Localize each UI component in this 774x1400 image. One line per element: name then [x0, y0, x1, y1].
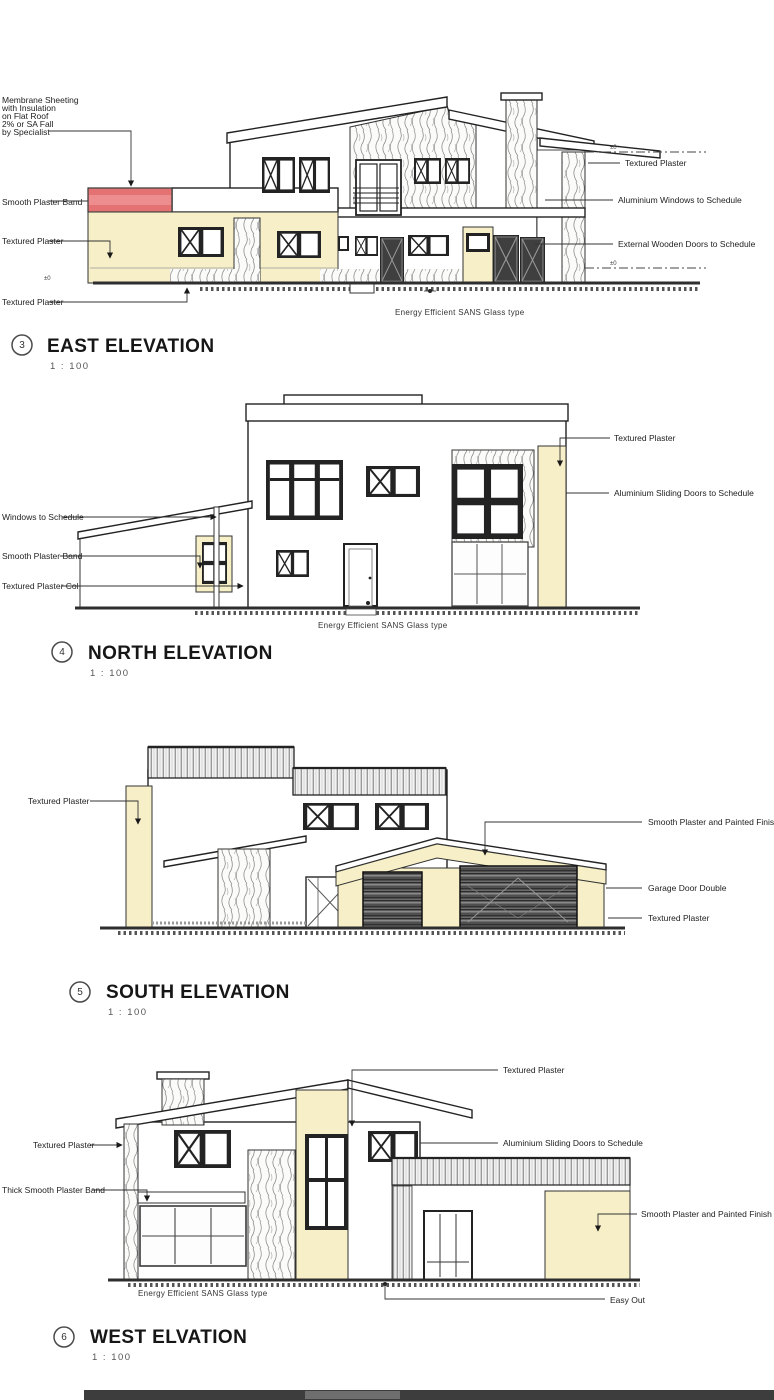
elevation-scale: 1 : 100	[92, 1352, 132, 1363]
annotation-label: Aluminium Windows to Schedule	[618, 195, 742, 205]
window	[414, 158, 441, 184]
annotation-label: Textured Plaster	[614, 433, 676, 443]
elevation-scale: 1 : 100	[90, 668, 130, 679]
north-parapet-band	[246, 404, 568, 421]
leader-line	[385, 1284, 605, 1299]
level-text: ±0	[44, 276, 51, 282]
window	[174, 1130, 231, 1168]
west-elevation: Textured Plaster Aluminium Sliding Doors…	[2, 1065, 772, 1363]
west-lower-window	[140, 1206, 246, 1266]
door	[493, 235, 519, 283]
east-chimney	[506, 99, 537, 216]
detail-number: 4	[59, 647, 65, 658]
level-text: ±0	[610, 145, 617, 151]
east-step	[350, 284, 374, 293]
elevation-scale: 1 : 100	[50, 361, 90, 372]
south-drawing	[100, 747, 625, 933]
elevation-title: SOUTH ELEVATION	[106, 982, 290, 1003]
annotation-label: Smooth Plaster Band	[2, 197, 83, 207]
north-post	[214, 507, 219, 608]
east-red-band-top	[89, 189, 171, 195]
south-stone-panel	[218, 849, 270, 928]
annotation-label: by Specialist	[2, 127, 50, 137]
annotation-label: Garage Door Double	[648, 883, 727, 893]
east-drawing: ±0 ±0 ±0	[44, 93, 706, 293]
garage-door-single	[363, 872, 422, 928]
south-roof-right	[293, 768, 446, 795]
east-red-band-bottom	[89, 205, 171, 211]
window	[178, 227, 224, 257]
door	[380, 237, 404, 283]
west-flat-roof-band	[392, 1158, 630, 1185]
detail-number: 5	[77, 987, 83, 998]
leader-line	[560, 438, 610, 466]
south-elevation: Textured Plaster Smooth Plaster and Pain…	[28, 747, 774, 1018]
annotation-label: Aluminium Sliding Doors to Schedule	[614, 488, 754, 498]
elevation-scale: 1 : 100	[108, 1007, 148, 1018]
annotation-label: Easy Out	[610, 1295, 646, 1305]
west-smooth-band	[125, 1192, 245, 1203]
west-cream-right	[545, 1191, 630, 1280]
elevation-title: EAST ELEVATION	[47, 336, 214, 357]
detail-number: 3	[19, 340, 25, 351]
north-title-block: 4 NORTH ELEVATION 1 : 100	[52, 642, 273, 679]
east-title-block: 3 EAST ELEVATION 1 : 100	[12, 335, 214, 372]
leader-line	[48, 288, 187, 302]
window	[366, 466, 420, 497]
west-chimney-cap	[157, 1072, 209, 1079]
south-title-block: 5 SOUTH ELEVATION 1 : 100	[70, 982, 290, 1018]
window	[452, 464, 523, 539]
detail-number: 6	[61, 1332, 67, 1343]
annotation-label: Textured Plaster	[648, 913, 710, 923]
annotation-label: Thick Smooth Plaster Band	[2, 1185, 105, 1195]
north-step	[346, 609, 376, 615]
west-stone-pilaster	[124, 1124, 138, 1280]
north-elevation: Windows to Schedule Smooth Plaster Band …	[2, 395, 754, 679]
window	[355, 236, 378, 256]
north-cream-band	[538, 446, 566, 608]
west-title-block: 6 WEST ELVATION 1 : 100	[54, 1327, 247, 1363]
drawing-sheet: ±0 ±0 ±0 Membrane Sheeting with Insulati…	[0, 0, 774, 1400]
west-drawing	[108, 1072, 640, 1286]
annotation-label: Smooth Plaster and Painted Finish	[648, 817, 774, 827]
south-roof-left	[148, 747, 294, 778]
annotation-label: Textured Plaster	[625, 158, 687, 168]
annotation-label: Textured Plaster	[33, 1140, 95, 1150]
east-plinth-stone-left	[170, 269, 260, 283]
window	[277, 231, 321, 258]
window	[303, 803, 359, 830]
window	[445, 158, 470, 184]
garage-door-double	[460, 866, 577, 928]
footer-bar-light	[305, 1391, 400, 1399]
elevation-title: NORTH ELEVATION	[88, 643, 273, 664]
level-text: ±0	[610, 261, 617, 267]
west-door	[424, 1211, 472, 1280]
annotation-label: Textured Plaster	[503, 1065, 565, 1075]
window	[375, 803, 429, 830]
west-louvre-strip	[393, 1186, 412, 1280]
glass-note: Energy Efficient SANS Glass type	[395, 308, 525, 317]
north-drawing	[75, 395, 640, 615]
north-entrance-door	[344, 544, 377, 606]
annotation-label: Textured Plaster	[28, 796, 90, 806]
leader-line	[48, 131, 131, 186]
annotation-label: Smooth Plaster and Painted Finish	[641, 1209, 772, 1219]
east-balcony-door	[353, 160, 401, 215]
west-tall-window	[305, 1134, 348, 1230]
window	[266, 460, 343, 520]
west-roof-right	[348, 1080, 472, 1118]
east-elevation: ±0 ±0 ±0 Membrane Sheeting with Insulati…	[1, 93, 756, 372]
elevation-title: WEST ELVATION	[90, 1327, 247, 1348]
footer-bar-dark	[84, 1390, 774, 1400]
annotation-label: Aluminium Sliding Doors to Schedule	[503, 1138, 643, 1148]
east-chimney-cap	[501, 93, 542, 100]
north-level-dot	[366, 601, 370, 605]
elevations-svg: ±0 ±0 ±0 Membrane Sheeting with Insulati…	[0, 0, 774, 1400]
window	[276, 550, 309, 577]
north-sliding-doors	[452, 542, 528, 606]
glass-note: Energy Efficient SANS Glass type	[318, 621, 448, 630]
annotation-label: External Wooden Doors to Schedule	[618, 239, 756, 249]
window	[262, 157, 295, 193]
west-stone-column	[248, 1150, 295, 1280]
north-carport-roof	[78, 501, 252, 539]
east-vent	[338, 236, 349, 251]
window	[408, 235, 449, 256]
glass-note: Energy Efficient SANS Glass type	[138, 1289, 268, 1298]
window	[299, 157, 330, 193]
east-small-window	[466, 233, 490, 252]
south-cream-band	[126, 786, 152, 928]
footer-bar	[84, 1390, 774, 1400]
